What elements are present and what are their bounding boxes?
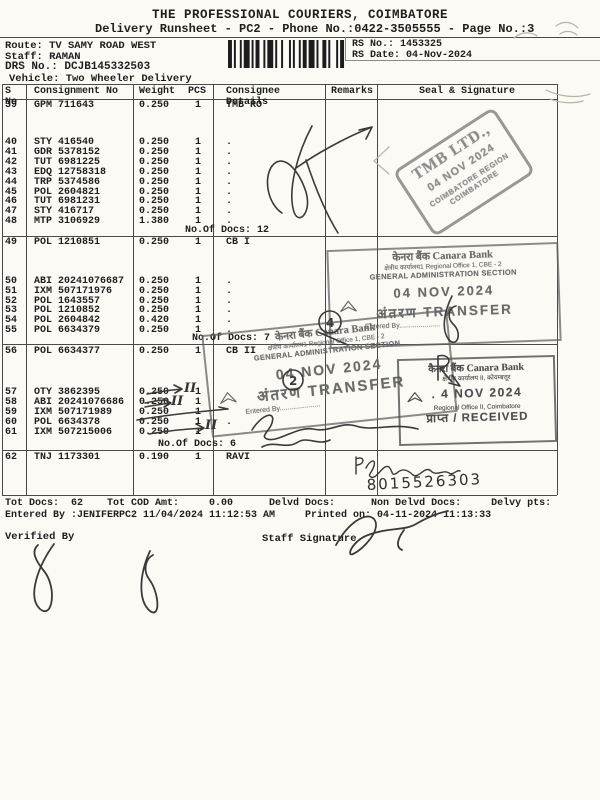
received-bank-name: Canara Bank xyxy=(466,362,524,375)
cell-sno: 39 xyxy=(2,101,26,111)
cell-consignee: RAVI xyxy=(213,453,325,463)
cell-weight: 0.250 xyxy=(133,101,188,111)
cell-weight: 0.250 xyxy=(133,428,188,438)
runsheet-page: THE PROFESSIONAL COURIERS, COIMBATORE De… xyxy=(0,0,600,800)
cell-sno: 49 xyxy=(2,238,26,248)
cell-weight: 0.250 xyxy=(133,326,188,336)
canara1-bank-hindi: केनरा बैंक xyxy=(392,251,430,263)
cell-pcs: 1 xyxy=(188,101,213,111)
cell-sno: 56 xyxy=(2,347,26,357)
received-bank-hindi: कैनरा बैंक xyxy=(428,363,464,375)
cell-weight: 0.190 xyxy=(133,453,188,463)
canara1-bank-name: Canara Bank xyxy=(432,249,493,262)
cell-sno: 62 xyxy=(2,453,26,463)
table-row: 62TNJ 11733010.1901RAVI xyxy=(2,453,557,463)
cell-weight: 1.380 xyxy=(133,217,188,227)
table-row: 39GPM 7116430.2501TMB RO xyxy=(2,101,557,111)
cell-consignment: POL 6634379 xyxy=(26,326,133,336)
cell-sno: 61 xyxy=(2,428,26,438)
staff-signature-label: Staff Signature xyxy=(262,533,357,545)
cell-pcs: 1 xyxy=(188,428,213,438)
no-of-docs-note: No.Of Docs: 6 xyxy=(158,439,236,450)
entered-line: Entered By :JENIFERPC2 11/04/2024 11:12:… xyxy=(5,510,491,521)
cell-consignment: IXM 507215006 xyxy=(26,428,133,438)
cell-pcs: 1 xyxy=(188,453,213,463)
cell-consignment: MTP 3106929 xyxy=(26,217,133,227)
totals-line: Tot Docs: 62 Tot COD Amt: 0.00 Delvd Doc… xyxy=(5,498,551,509)
canara-logo-icon xyxy=(406,390,424,404)
cell-consignee: CB I xyxy=(213,238,325,248)
cell-consignment: GPM 711643 xyxy=(26,101,133,111)
no-of-docs-note: No.Of Docs: 12 xyxy=(185,225,269,236)
cell-consignment: TNJ 1173301 xyxy=(26,453,133,463)
table-row: 48MTP 31069291.3801. xyxy=(2,217,557,227)
canara-logo-icon xyxy=(338,299,359,315)
cell-consignment: POL 6634377 xyxy=(26,347,133,357)
cell-pcs: 1 xyxy=(188,238,213,248)
cell-weight: 0.250 xyxy=(133,238,188,248)
cell-sno: 48 xyxy=(2,217,26,227)
received-action: प्राप्त / RECEIVED xyxy=(400,410,554,427)
canara-received-stamp: कैनरा बैंक Canara Bank क्षेत्रीय कार्याल… xyxy=(397,355,557,446)
cell-sno: 55 xyxy=(2,326,26,336)
verified-by-label: Verified By xyxy=(5,531,74,543)
cell-consignment: POL 1210851 xyxy=(26,238,133,248)
cell-consignee: TMB RO xyxy=(213,101,325,111)
canara-logo-icon xyxy=(217,390,238,407)
cell-weight: 0.250 xyxy=(133,347,188,357)
